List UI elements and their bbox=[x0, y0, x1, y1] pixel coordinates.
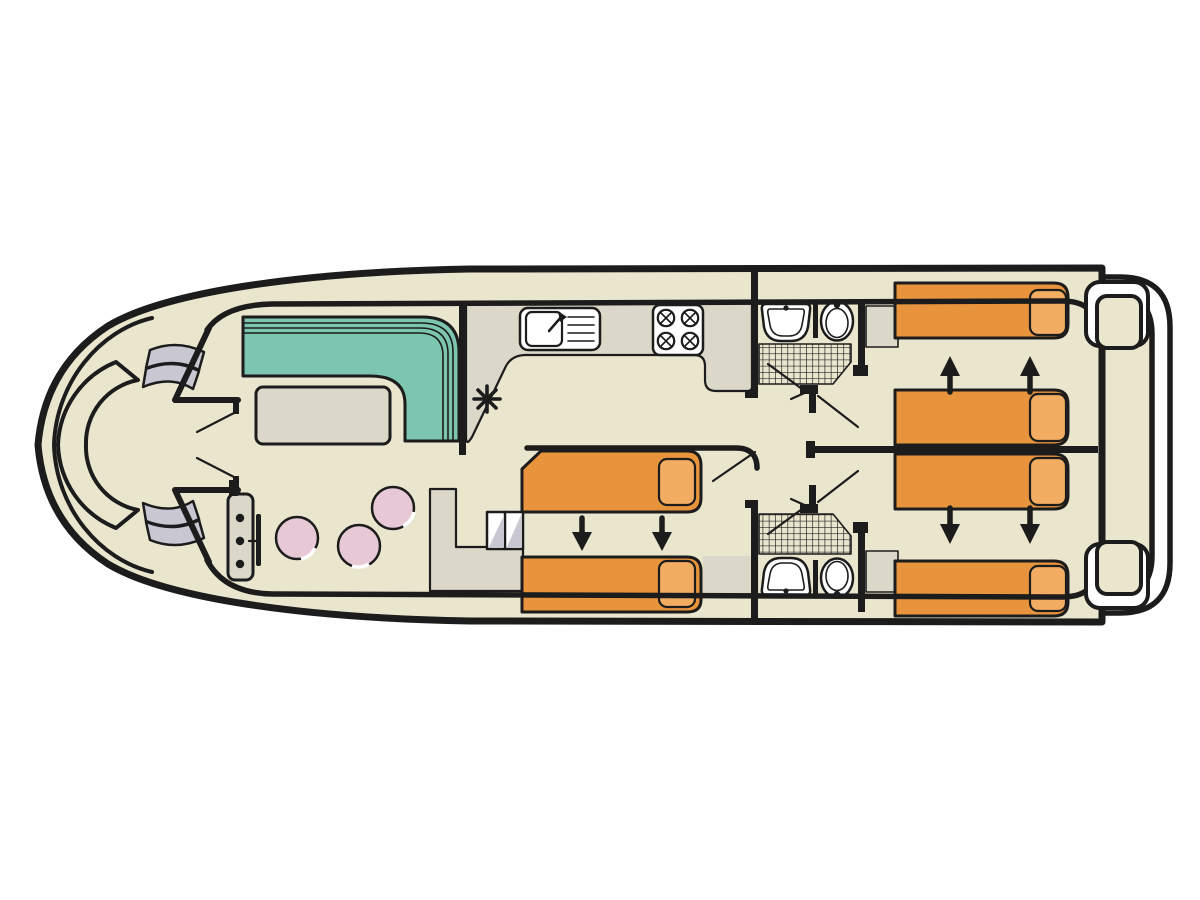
basin-tap bbox=[783, 305, 788, 310]
aft-nightstand-bottom bbox=[866, 551, 898, 592]
wall-end-cap bbox=[806, 441, 815, 458]
pillow bbox=[1030, 290, 1066, 335]
step-pad bbox=[1097, 542, 1141, 594]
corridor-floor-patch bbox=[703, 556, 759, 594]
aft-cabins-divider-wall bbox=[808, 446, 1098, 453]
basin-tap bbox=[783, 588, 788, 593]
saloon-galley-divider-wall bbox=[459, 305, 466, 455]
instrument-dot bbox=[236, 514, 244, 522]
door-post bbox=[233, 400, 239, 414]
galley-hob bbox=[653, 305, 703, 355]
step-pad bbox=[1097, 296, 1141, 348]
instrument-dot bbox=[236, 560, 244, 568]
pillow bbox=[659, 459, 695, 505]
stern-step-top bbox=[1086, 282, 1148, 348]
bathroom-wall-left bbox=[751, 500, 758, 622]
door-stop bbox=[853, 522, 868, 533]
bathroom-wall-right bbox=[858, 526, 865, 612]
door-post bbox=[809, 485, 816, 513]
stern-step-bottom bbox=[1086, 542, 1148, 608]
heater-asterisk bbox=[474, 386, 500, 412]
steering-wheel bbox=[256, 514, 261, 566]
pillow bbox=[659, 561, 695, 607]
wall-foot bbox=[745, 500, 758, 508]
pillow bbox=[1030, 458, 1066, 505]
door-stop bbox=[853, 365, 868, 376]
shower-tray bbox=[759, 344, 851, 384]
pillow bbox=[1030, 566, 1066, 611]
door-post bbox=[809, 385, 816, 413]
stool bbox=[338, 525, 380, 567]
bathroom-wall-left bbox=[751, 272, 758, 398]
pillow bbox=[1030, 394, 1066, 441]
galley-sink-unit bbox=[520, 308, 600, 350]
shower-tray bbox=[759, 514, 851, 554]
midship-steps bbox=[487, 512, 523, 549]
instrument-dot bbox=[236, 537, 244, 545]
console-wall-stub bbox=[229, 480, 238, 496]
bathroom-wall-right bbox=[858, 299, 865, 373]
saloon-table bbox=[256, 387, 390, 444]
boat-floorplan bbox=[0, 0, 1200, 900]
basin-toilet-divider bbox=[813, 560, 818, 598]
basin-toilet-divider bbox=[813, 301, 818, 338]
aft-nightstand-top bbox=[866, 306, 898, 347]
boat-floorplan-canvas bbox=[0, 0, 1200, 900]
wall-foot bbox=[745, 390, 758, 398]
sink-basin bbox=[526, 312, 562, 346]
